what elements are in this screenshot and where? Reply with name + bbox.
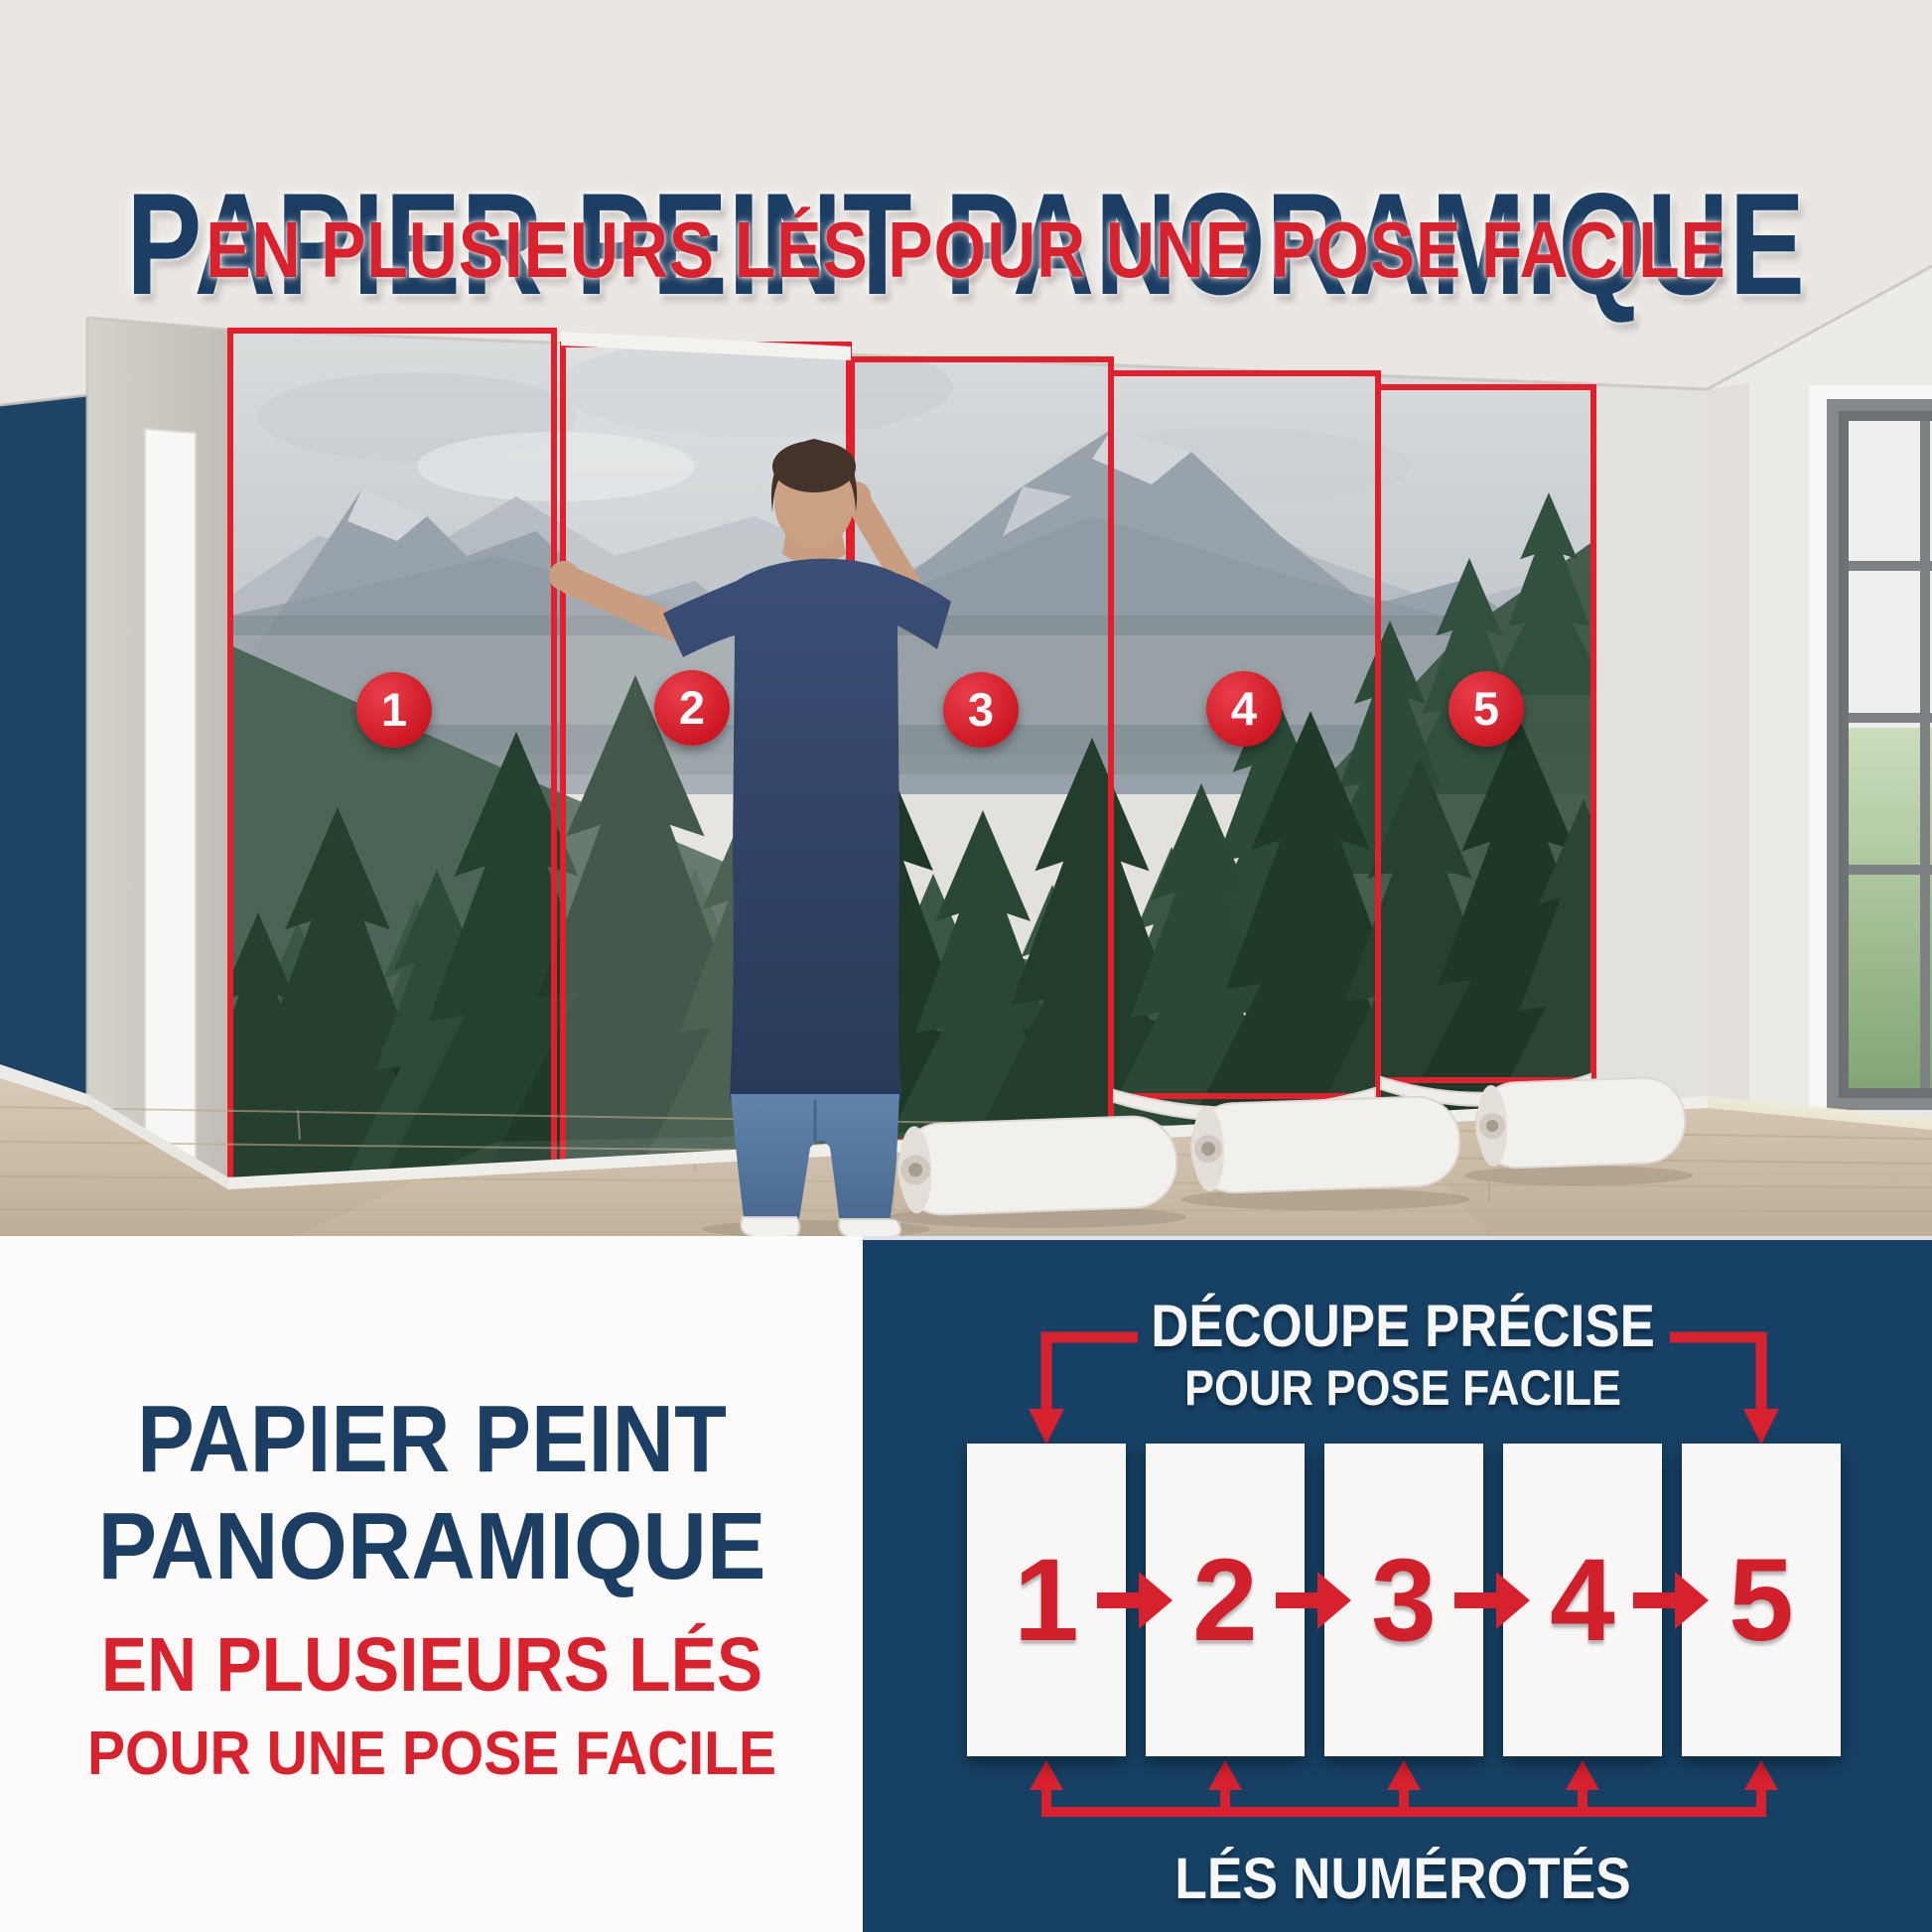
bottom-title-line2: PANORAMIQUE	[97, 1492, 765, 1601]
wallpaper-infographic: PAPIER PEINT PANORAMIQUE EN PLUSIEURS LÉ…	[0, 0, 1932, 1932]
strip-marker-4-number: 4	[1206, 671, 1282, 747]
arrow-right-icon	[1276, 1572, 1353, 1629]
diagram-strip-4-number: 4	[1550, 1533, 1615, 1668]
strip-marker-5-number: 5	[1449, 671, 1524, 747]
diagram-caption: LÉS NUMÉROTÉS	[1174, 1846, 1631, 1912]
accent-wall	[0, 395, 87, 1100]
bottom-left-panel: PAPIER PEINT PANORAMIQUE EN PLUSIEURS LÉ…	[0, 1236, 863, 1932]
diagram-strip-3-number: 3	[1371, 1533, 1437, 1668]
strip-marker-1-number: 1	[356, 672, 432, 748]
arrow-right-icon	[1454, 1572, 1532, 1629]
bottom-subtitle-line1: EN PLUSIEURS LÉS	[100, 1621, 761, 1710]
arrow-right-icon	[1633, 1572, 1711, 1629]
bottom-subtitle-line2: POUR UNE POSE FACILE	[86, 1719, 775, 1789]
left-wall	[87, 318, 228, 1183]
window	[1809, 385, 1932, 1125]
wallpaper-roll-3	[1475, 1076, 1687, 1169]
strip-marker-2: 2	[654, 670, 730, 746]
room-photo-section: PAPIER PEINT PANORAMIQUE EN PLUSIEURS LÉ…	[0, 0, 1932, 1236]
page-subtitle: EN PLUSIEURS LÉS POUR UNE POSE FACILE	[206, 205, 1725, 296]
diagram-strip-1-number: 1	[1014, 1533, 1079, 1668]
strip-marker-5: 5	[1449, 671, 1524, 747]
diagram-panel: DÉCOUPE PRÉCISE POUR POSE FACILE	[863, 1236, 1932, 1932]
strip-marker-2-number: 2	[654, 670, 730, 746]
diagram-strip-5-number: 5	[1728, 1533, 1794, 1668]
arrow-right-icon	[1097, 1572, 1174, 1629]
diagram-strip-2-number: 2	[1192, 1533, 1258, 1668]
wallpaper-roll-1	[897, 1115, 1177, 1216]
strip-marker-3: 3	[943, 672, 1019, 748]
strip-marker-3-number: 3	[943, 672, 1019, 748]
strip-marker-1: 1	[356, 672, 432, 748]
strip-marker-4: 4	[1206, 671, 1282, 747]
wallpaper-roll-2	[1190, 1095, 1461, 1193]
bottom-title-line1: PAPIER PEINT	[137, 1385, 727, 1494]
